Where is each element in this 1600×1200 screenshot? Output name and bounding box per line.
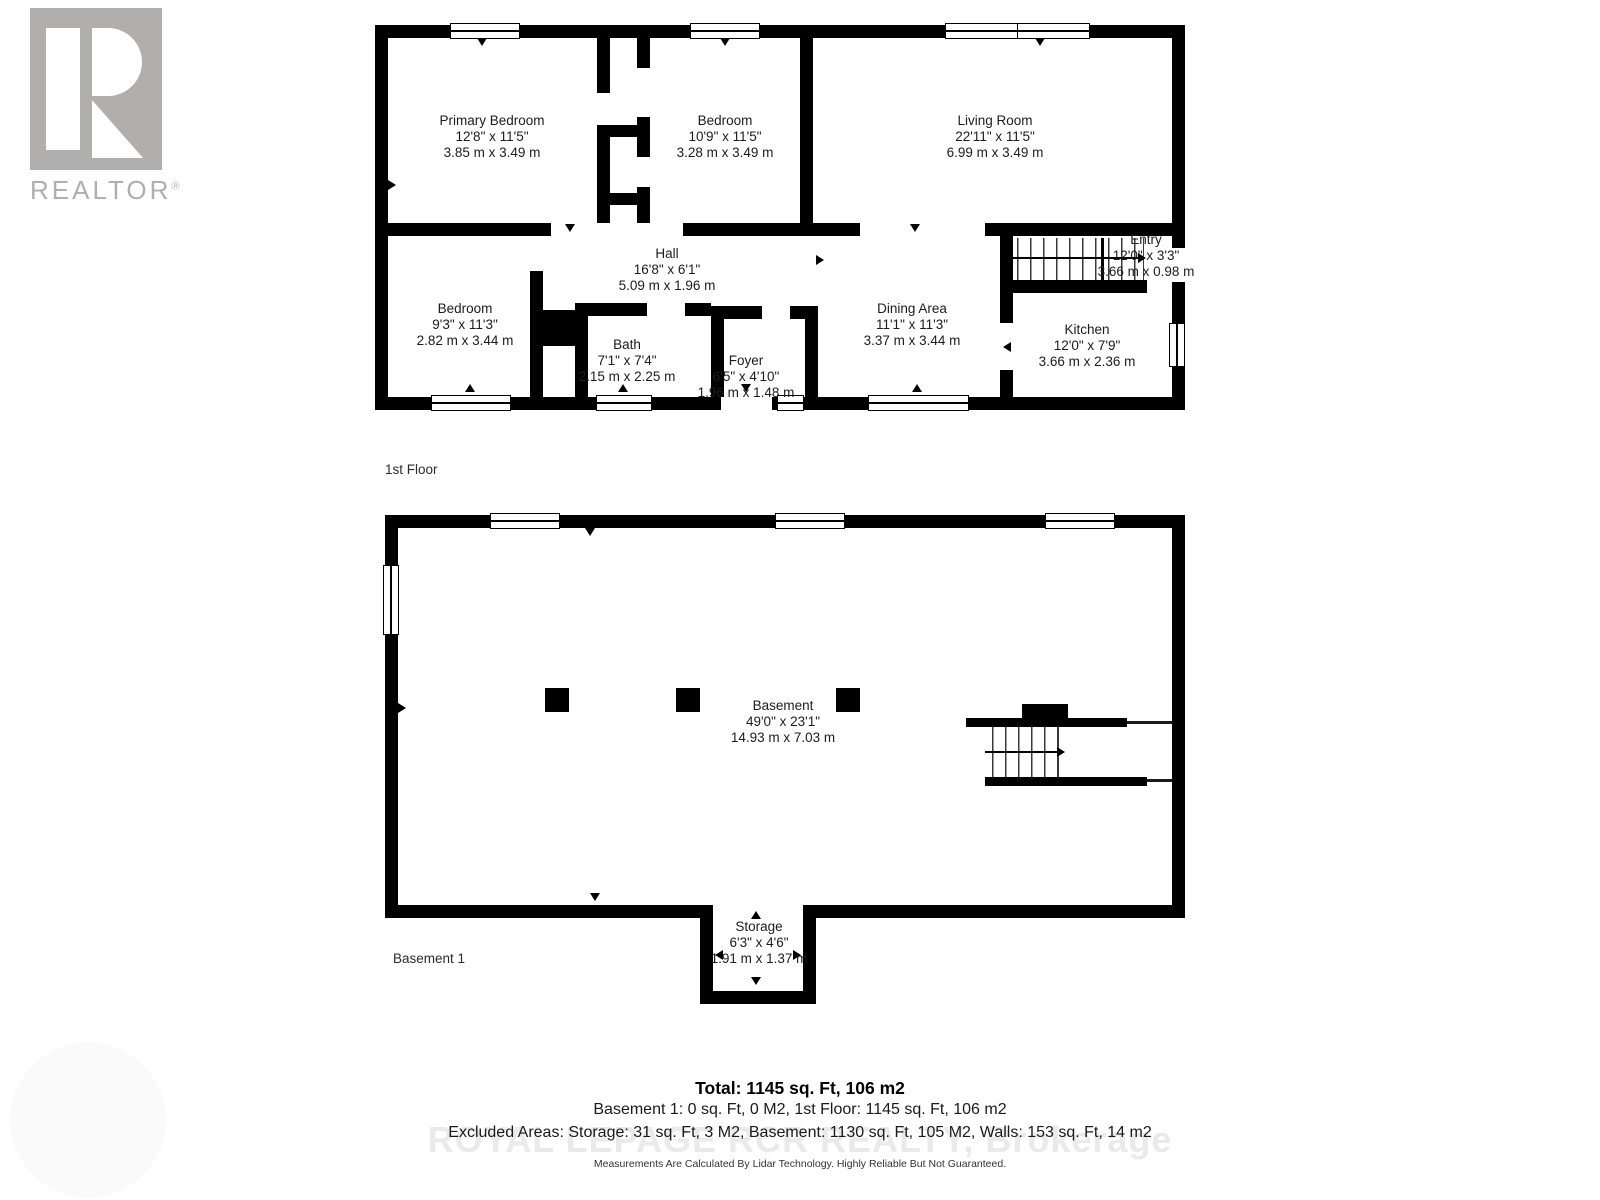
window (1045, 513, 1115, 529)
room-dims-metric: 1.96 m x 1.48 m (646, 385, 846, 401)
wall (375, 25, 388, 410)
door-marker (585, 528, 595, 536)
floorplan-page: REALTOR® (0, 0, 1600, 1200)
room-dims-metric: 3.66 m x 0.98 m (1061, 264, 1231, 280)
room-name: Storage (683, 919, 835, 935)
door-marker (1035, 38, 1045, 46)
room-dims-imperial: 9'3" x 11'3" (365, 317, 565, 333)
window (868, 395, 969, 411)
wall (724, 306, 762, 319)
wall (388, 223, 551, 236)
room-dims-imperial: 49'0" x 23'1" (683, 714, 883, 730)
room-label: Kitchen 12'0" x 7'9" 3.66 m x 2.36 m (987, 322, 1187, 370)
window (945, 23, 1018, 39)
room-dims-imperial: 11'1" x 11'3" (812, 317, 1012, 333)
room-dims-metric: 1.91 m x 1.37 m (683, 951, 835, 967)
window (1017, 23, 1090, 39)
door-marker (912, 384, 922, 392)
door-marker (477, 38, 487, 46)
room-name: Primary Bedroom (392, 113, 592, 129)
door-marker (590, 893, 600, 901)
door-marker (751, 911, 761, 919)
door-marker (398, 703, 406, 713)
room-dims-metric: 3.66 m x 2.36 m (987, 354, 1187, 370)
room-label: Living Room 22'11" x 11'5" 6.99 m x 3.49… (895, 113, 1095, 161)
basement-plan: Basement 49'0" x 23'1" 14.93 m x 7.03 m … (385, 515, 1185, 1007)
wall (1000, 370, 1013, 397)
door-marker (816, 255, 824, 265)
room-dims-metric: 3.85 m x 3.49 m (392, 145, 592, 161)
room-dims-imperial: 22'11" x 11'5" (895, 129, 1095, 145)
room-name: Bedroom (365, 301, 565, 317)
registered-trademark-icon: ® (171, 180, 179, 192)
wall (1172, 515, 1185, 918)
wall (1022, 704, 1068, 718)
summary-excluded: Excluded Areas: Storage: 31 sq. Ft, 3 M2… (0, 1124, 1600, 1142)
realtor-logo: REALTOR® (30, 8, 180, 206)
door-marker (618, 384, 628, 392)
summary-disclaimer: Measurements Are Calculated By Lidar Tec… (0, 1158, 1600, 1170)
room-label: Storage 6'3" x 4'6" 1.91 m x 1.37 m (683, 919, 835, 967)
window (775, 513, 845, 529)
room-label: Foyer 6'5" x 4'10" 1.96 m x 1.48 m (646, 353, 846, 401)
room-dims-imperial: 10'9" x 11'5" (625, 129, 825, 145)
room-dims-metric: 6.99 m x 3.49 m (895, 145, 1095, 161)
room-label: Hall 16'8" x 6'1" 5.09 m x 1.96 m (587, 246, 747, 294)
door-marker (388, 180, 396, 190)
wall (685, 303, 711, 316)
wall (683, 223, 860, 236)
room-label: Entry 12'0" x 3'3" 3.66 m x 0.98 m (1061, 232, 1231, 280)
summary-total: Total: 1145 sq. Ft, 106 m2 (0, 1078, 1600, 1099)
floor-caption-basement: Basement 1 (393, 951, 465, 966)
room-dims-metric: 3.37 m x 3.44 m (812, 333, 1012, 349)
door-marker (465, 384, 475, 392)
opening-line (1147, 779, 1172, 782)
window (450, 23, 520, 39)
stair-arrow (985, 751, 1059, 753)
wall (1005, 280, 1147, 293)
first-floor-plan: Primary Bedroom 12'8" x 11'5" 3.85 m x 3… (375, 25, 1185, 410)
room-name: Entry (1061, 232, 1231, 248)
stair-arrow-head (1057, 747, 1065, 757)
wall (597, 125, 610, 223)
wall (385, 905, 713, 918)
summary-floors: Basement 1: 0 sq. Ft, 0 M2, 1st Floor: 1… (0, 1101, 1600, 1119)
wall (637, 187, 650, 223)
wall (790, 306, 805, 319)
room-label: Bedroom 10'9" x 11'5" 3.28 m x 3.49 m (625, 113, 825, 161)
wall (597, 38, 610, 93)
door-marker (720, 38, 730, 46)
wall (637, 38, 650, 68)
support-post (545, 688, 569, 712)
window (490, 513, 560, 529)
room-label: Primary Bedroom 12'8" x 11'5" 3.85 m x 3… (392, 113, 592, 161)
room-name: Kitchen (987, 322, 1187, 338)
room-label: Dining Area 11'1" x 11'3" 3.37 m x 3.44 … (812, 301, 1012, 349)
door-marker (751, 977, 761, 985)
room-dims-imperial: 12'8" x 11'5" (392, 129, 592, 145)
wall (966, 718, 1127, 727)
window (690, 23, 760, 39)
room-dims-metric: 14.93 m x 7.03 m (683, 730, 883, 746)
realtor-wordmark: REALTOR (30, 175, 171, 205)
room-name: Living Room (895, 113, 1095, 129)
room-name: Basement (683, 698, 883, 714)
window (383, 565, 399, 635)
room-name: Dining Area (812, 301, 1012, 317)
room-name: Foyer (646, 353, 846, 369)
room-name: Bedroom (625, 113, 825, 129)
room-dims-imperial: 12'0" x 7'9" (987, 338, 1187, 354)
window (431, 395, 511, 411)
wall (985, 777, 1147, 786)
realtor-logo-mark (30, 8, 162, 170)
room-name: Hall (587, 246, 747, 262)
room-dims-metric: 5.09 m x 1.96 m (587, 278, 747, 294)
wall (803, 905, 1185, 918)
floor-caption-1st-floor: 1st Floor (385, 462, 438, 477)
opening-line (1127, 721, 1172, 724)
room-name: Bath (527, 337, 727, 353)
room-dims-imperial: 12'0" x 3'3" (1061, 248, 1231, 264)
room-dims-imperial: 6'3" x 4'6" (683, 935, 835, 951)
wall (700, 991, 816, 1004)
door-marker (910, 224, 920, 232)
room-dims-imperial: 6'5" x 4'10" (646, 369, 846, 385)
window (596, 395, 652, 411)
room-dims-imperial: 16'8" x 6'1" (587, 262, 747, 278)
room-label: Basement 49'0" x 23'1" 14.93 m x 7.03 m (683, 698, 883, 746)
realtor-logo-text: REALTOR® (30, 175, 180, 206)
door-marker (565, 224, 575, 232)
room-dims-metric: 3.28 m x 3.49 m (625, 145, 825, 161)
